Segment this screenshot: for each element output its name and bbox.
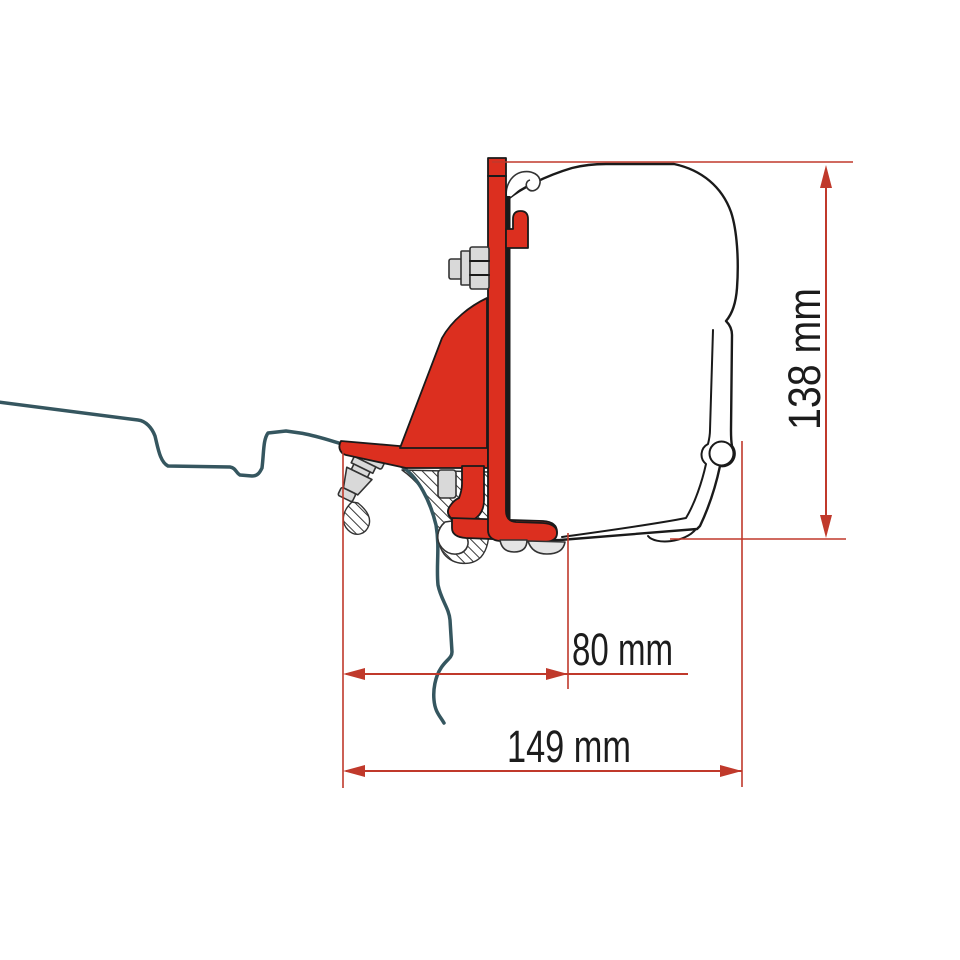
arrow-down-icon [820,515,832,538]
arrow-up-icon [820,165,832,188]
diagram-canvas: 138 mm 80 mm 149 mm [0,0,960,960]
awning-adapter-diagram: 138 mm 80 mm 149 mm [0,0,960,960]
label-80mm: 80 mm [572,624,673,675]
bolt-washer [461,251,470,285]
rubber-seal-lobe [343,502,369,534]
foot-pad-left [500,540,527,552]
arrow-right-icon [720,765,742,777]
label-138mm: 138 mm [779,288,830,430]
arrow-left-icon [343,765,365,777]
bracket-insert-tab [438,470,456,498]
label-149mm: 149 mm [507,721,631,772]
bracket-gusset [400,298,487,448]
awning-case-outline [508,164,738,542]
foot-pad-right [528,541,565,554]
bolt-nut [470,247,489,289]
arrow-left-icon [343,668,365,680]
arrow-right-icon [546,668,568,680]
bolt-head [449,259,462,279]
mounting-bolt [449,247,489,289]
